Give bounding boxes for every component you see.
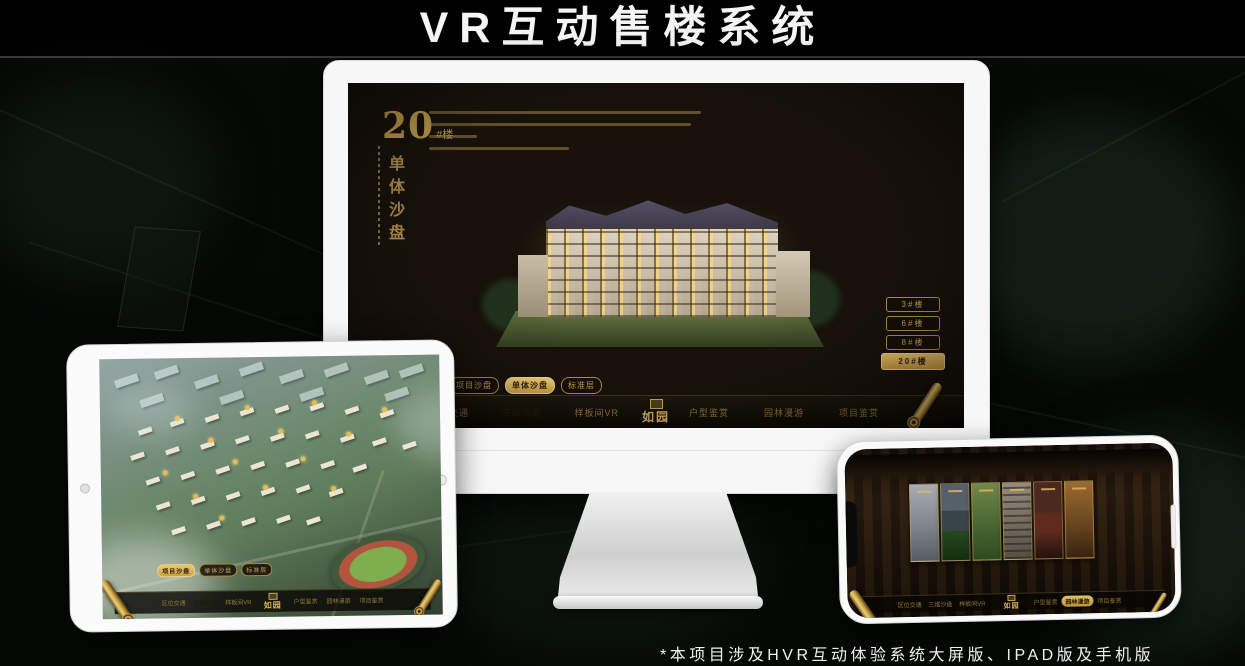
building-block xyxy=(384,386,409,401)
card-caption xyxy=(979,489,993,491)
nav-left-group: 区位交通 三维沙盘 样板间VR xyxy=(158,591,254,613)
floor-button-8[interactable]: 8#楼 xyxy=(886,335,940,350)
building-block xyxy=(306,516,321,525)
nav-item-model-room-vr[interactable]: 样板间VR xyxy=(571,404,622,421)
building-block xyxy=(205,414,220,423)
phone-side-button[interactable] xyxy=(1171,504,1177,548)
card-caption xyxy=(917,491,931,493)
logo-seal-icon xyxy=(649,399,662,409)
page-title: VR互动售楼系统 xyxy=(0,0,1245,56)
scene-card[interactable] xyxy=(1033,481,1064,560)
building-block xyxy=(276,515,291,524)
nav-item-3d-sandbox[interactable]: 三维沙盘 xyxy=(926,598,954,610)
nav-item-model-room-vr[interactable]: 样板间VR xyxy=(222,595,255,608)
floor-button-3[interactable]: 3#楼 xyxy=(886,297,940,312)
building-block xyxy=(241,517,256,526)
card-caption xyxy=(1010,489,1024,491)
nav-item-garden-tour[interactable]: 园林漫游 xyxy=(761,404,807,421)
building-wing xyxy=(518,255,548,317)
building-model-image[interactable] xyxy=(488,171,833,356)
phone-screen: 区位交通 三维沙盘 样板间VR 如园 户型鉴赏 园林漫游 项目鉴赏 xyxy=(844,443,1175,619)
nav-item-floorplans[interactable]: 户型鉴赏 xyxy=(291,594,321,607)
phone-notch xyxy=(845,501,857,567)
unit-number: 20 xyxy=(382,105,434,147)
building-block xyxy=(165,446,180,455)
monitor-stand-base xyxy=(553,596,763,609)
building-number-badge xyxy=(193,494,198,499)
poster-canvas: VR互动售楼系统 20#楼 单体沙盘 xyxy=(0,0,1245,666)
logo-text: 如园 xyxy=(264,601,282,609)
building-block xyxy=(352,464,367,473)
subtab-standard-floor[interactable]: 标准层 xyxy=(561,377,602,394)
scene-card[interactable] xyxy=(1002,482,1033,561)
scroll-menu-icon[interactable] xyxy=(848,588,882,618)
nav-item-3d-sandbox[interactable]: 三维沙盘 xyxy=(190,596,220,609)
building-block xyxy=(239,361,264,376)
text-line xyxy=(429,135,477,138)
building-number-badge xyxy=(208,438,213,443)
building-wing xyxy=(776,251,810,317)
subtab-standard-floor[interactable]: 标准层 xyxy=(241,563,272,576)
building-block xyxy=(399,363,424,378)
building-number-badge xyxy=(263,485,268,490)
building-block xyxy=(324,362,349,377)
building-number-badge xyxy=(219,516,224,521)
building-block xyxy=(171,526,186,535)
subtab-project-sandbox[interactable]: 项目沙盘 xyxy=(157,564,195,578)
building-block xyxy=(270,433,285,442)
building-block xyxy=(235,435,250,444)
scene-card[interactable] xyxy=(971,482,1002,561)
logo-text: 如园 xyxy=(1004,602,1020,609)
scene-card[interactable] xyxy=(909,483,940,562)
building-block xyxy=(285,458,300,467)
decorative-vertical-caption xyxy=(378,145,380,245)
building-number-badge xyxy=(331,486,336,491)
nav-right-group: 户型鉴赏 园林漫游 项目鉴赏 xyxy=(290,589,386,611)
building-block xyxy=(180,471,195,480)
sandbox-subtabs: 项目沙盘 单体沙盘 标准层 xyxy=(157,563,272,578)
building-block xyxy=(206,521,221,530)
nav-right-group: 户型鉴赏 园林漫游 项目鉴赏 xyxy=(686,396,882,428)
nav-item-garden-tour[interactable]: 园林漫游 xyxy=(1061,595,1093,607)
scene-card[interactable] xyxy=(940,483,971,562)
building-number-badge xyxy=(233,459,238,464)
phone-mockup: 区位交通 三维沙盘 样板间VR 如园 户型鉴赏 园林漫游 项目鉴赏 xyxy=(836,434,1182,624)
nav-item-project-gallery[interactable]: 项目鉴赏 xyxy=(836,404,882,421)
monitor-stand xyxy=(558,492,758,596)
nav-item-floorplans[interactable]: 户型鉴赏 xyxy=(686,404,732,421)
card-caption xyxy=(948,490,962,492)
tablet-screen: 项目沙盘 单体沙盘 标准层 区位交通 三维沙盘 样板间VR 如园 xyxy=(99,355,443,620)
subtab-single-sandbox[interactable]: 单体沙盘 xyxy=(505,377,555,394)
main-navbar: 区位交通 三维沙盘 样板间VR 如园 户型鉴赏 园林漫游 项目鉴赏 xyxy=(857,590,1165,613)
building-block xyxy=(320,460,335,469)
text-line xyxy=(429,123,691,126)
building-block xyxy=(145,476,160,485)
subtab-single-sandbox[interactable]: 单体沙盘 xyxy=(199,563,237,577)
tablet-frame: 项目沙盘 单体沙盘 标准层 区位交通 三维沙盘 样板间VR 如园 xyxy=(66,339,458,632)
nav-right-group: 户型鉴赏 园林漫游 项目鉴赏 xyxy=(1031,592,1123,610)
tablet-mockup: 项目沙盘 单体沙盘 标准层 区位交通 三维沙盘 样板间VR 如园 xyxy=(66,339,458,632)
nav-item-floorplans[interactable]: 户型鉴赏 xyxy=(1031,595,1059,607)
building-number-badge xyxy=(312,400,317,405)
building-block xyxy=(130,452,145,461)
building-roof xyxy=(546,197,778,231)
building-block xyxy=(372,437,387,446)
nav-left-group: 区位交通 三维沙盘 样板间VR xyxy=(426,396,622,428)
nav-left-group: 区位交通 三维沙盘 样板间VR xyxy=(895,594,987,612)
nav-item-location[interactable]: 区位交通 xyxy=(895,598,923,610)
phone-frame: 区位交通 三维沙盘 样板间VR 如园 户型鉴赏 园林漫游 项目鉴赏 xyxy=(836,434,1182,624)
unit-caption: 单体沙盘 xyxy=(382,155,406,247)
ruyuan-logo[interactable]: 如园 xyxy=(642,399,670,423)
building-block xyxy=(364,370,389,385)
building-block xyxy=(299,387,324,402)
floor-button-6[interactable]: 6#楼 xyxy=(886,316,940,331)
subtab-project-sandbox[interactable]: 项目沙盘 xyxy=(449,377,499,394)
building-block xyxy=(154,365,179,380)
building-number-badge xyxy=(382,407,387,412)
interior-backdrop xyxy=(844,449,1173,484)
ruyuan-logo[interactable]: 如园 xyxy=(1003,595,1019,609)
building-block xyxy=(219,390,244,405)
footnote-text: *本项目涉及HVR互动体验系统大屏版、IPAD版及手机版 xyxy=(660,641,1154,665)
nav-item-garden-tour[interactable]: 园林漫游 xyxy=(324,594,354,607)
divider xyxy=(0,56,1245,58)
nav-item-model-room-vr[interactable]: 样板间VR xyxy=(957,597,988,609)
building-facade xyxy=(546,229,778,317)
building-block xyxy=(250,461,265,470)
scroll-menu-icon[interactable] xyxy=(1150,592,1168,616)
scroll-menu-icon[interactable] xyxy=(910,381,943,425)
building-block xyxy=(226,491,241,500)
building-block xyxy=(194,374,219,389)
nav-item-location[interactable]: 区位交通 xyxy=(159,596,189,609)
card-caption xyxy=(1041,488,1055,490)
nav-item-project-gallery[interactable]: 项目鉴赏 xyxy=(356,593,386,606)
description-text-lines xyxy=(429,111,719,159)
building-block xyxy=(305,430,320,439)
building-block xyxy=(200,441,215,450)
building-block xyxy=(345,406,360,415)
building-block xyxy=(279,369,304,384)
tablet-camera-icon xyxy=(80,483,90,493)
nav-item-3d-sandbox[interactable]: 三维沙盘 xyxy=(499,404,545,421)
building-number-badge xyxy=(346,432,351,437)
building-block xyxy=(274,405,289,414)
sandbox-subtabs: 项目沙盘 单体沙盘 标准层 xyxy=(449,377,602,394)
card-caption xyxy=(1072,487,1086,489)
building-number-badge xyxy=(245,405,250,410)
text-line xyxy=(429,111,701,114)
building-block xyxy=(296,484,311,493)
building-number-badge xyxy=(301,456,306,461)
text-line xyxy=(429,147,569,150)
building-number-badge xyxy=(163,470,168,475)
floor-button-20[interactable]: 20#楼 xyxy=(881,353,945,370)
building-block xyxy=(215,465,230,474)
building-block xyxy=(156,501,171,510)
logo-text: 如园 xyxy=(642,411,670,423)
ruyuan-logo[interactable]: 如园 xyxy=(263,593,281,609)
nav-item-project-gallery[interactable]: 项目鉴赏 xyxy=(1095,594,1123,606)
building-number-badge xyxy=(278,429,283,434)
scene-card[interactable] xyxy=(1064,480,1095,559)
main-navbar: 区位交通 三维沙盘 样板间VR 如园 户型鉴赏 园林漫游 项目鉴赏 xyxy=(114,588,430,614)
